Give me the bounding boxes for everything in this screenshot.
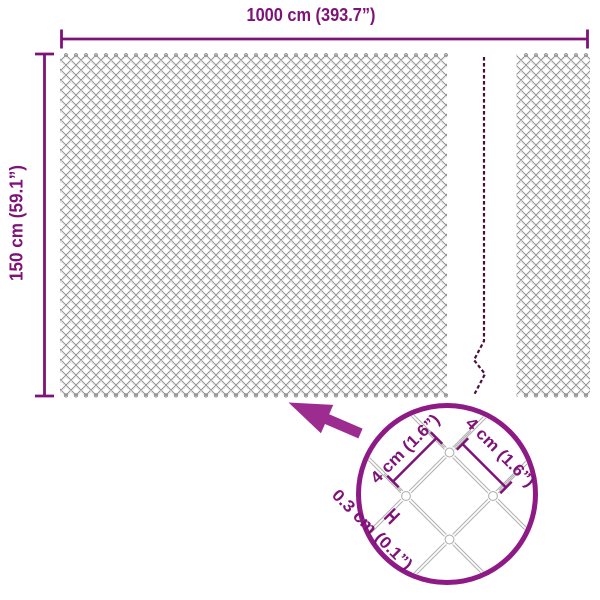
svg-text:1000 cm (393.7”): 1000 cm (393.7”) [247,4,376,25]
svg-text:150 cm (59.1”): 150 cm (59.1”) [6,165,27,281]
